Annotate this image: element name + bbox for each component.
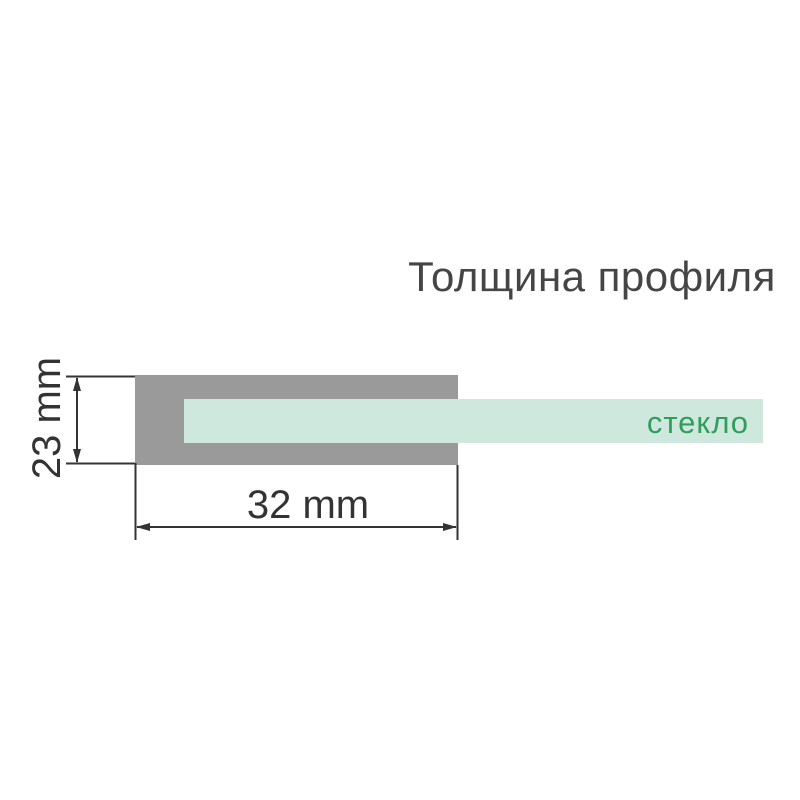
diagram-canvas: Толщина профиля стекло 23 mm 32 mm — [0, 0, 800, 800]
height-dim-arrow-up — [73, 377, 81, 391]
width-dimension: 32 mm — [136, 463, 458, 540]
profile-cross-section: стекло — [135, 375, 763, 465]
page-title: Толщина профиля — [408, 253, 776, 300]
height-dim-arrow-down — [73, 449, 81, 463]
width-dim-arrow-right — [443, 523, 457, 531]
width-dim-arrow-left — [136, 523, 150, 531]
height-dimension-label: 23 mm — [25, 357, 69, 479]
profile-thickness-diagram: Толщина профиля стекло 23 mm 32 mm — [0, 0, 800, 800]
glass-label: стекло — [647, 405, 749, 440]
width-dimension-label: 32 mm — [247, 483, 369, 527]
height-dimension: 23 mm — [25, 357, 135, 479]
